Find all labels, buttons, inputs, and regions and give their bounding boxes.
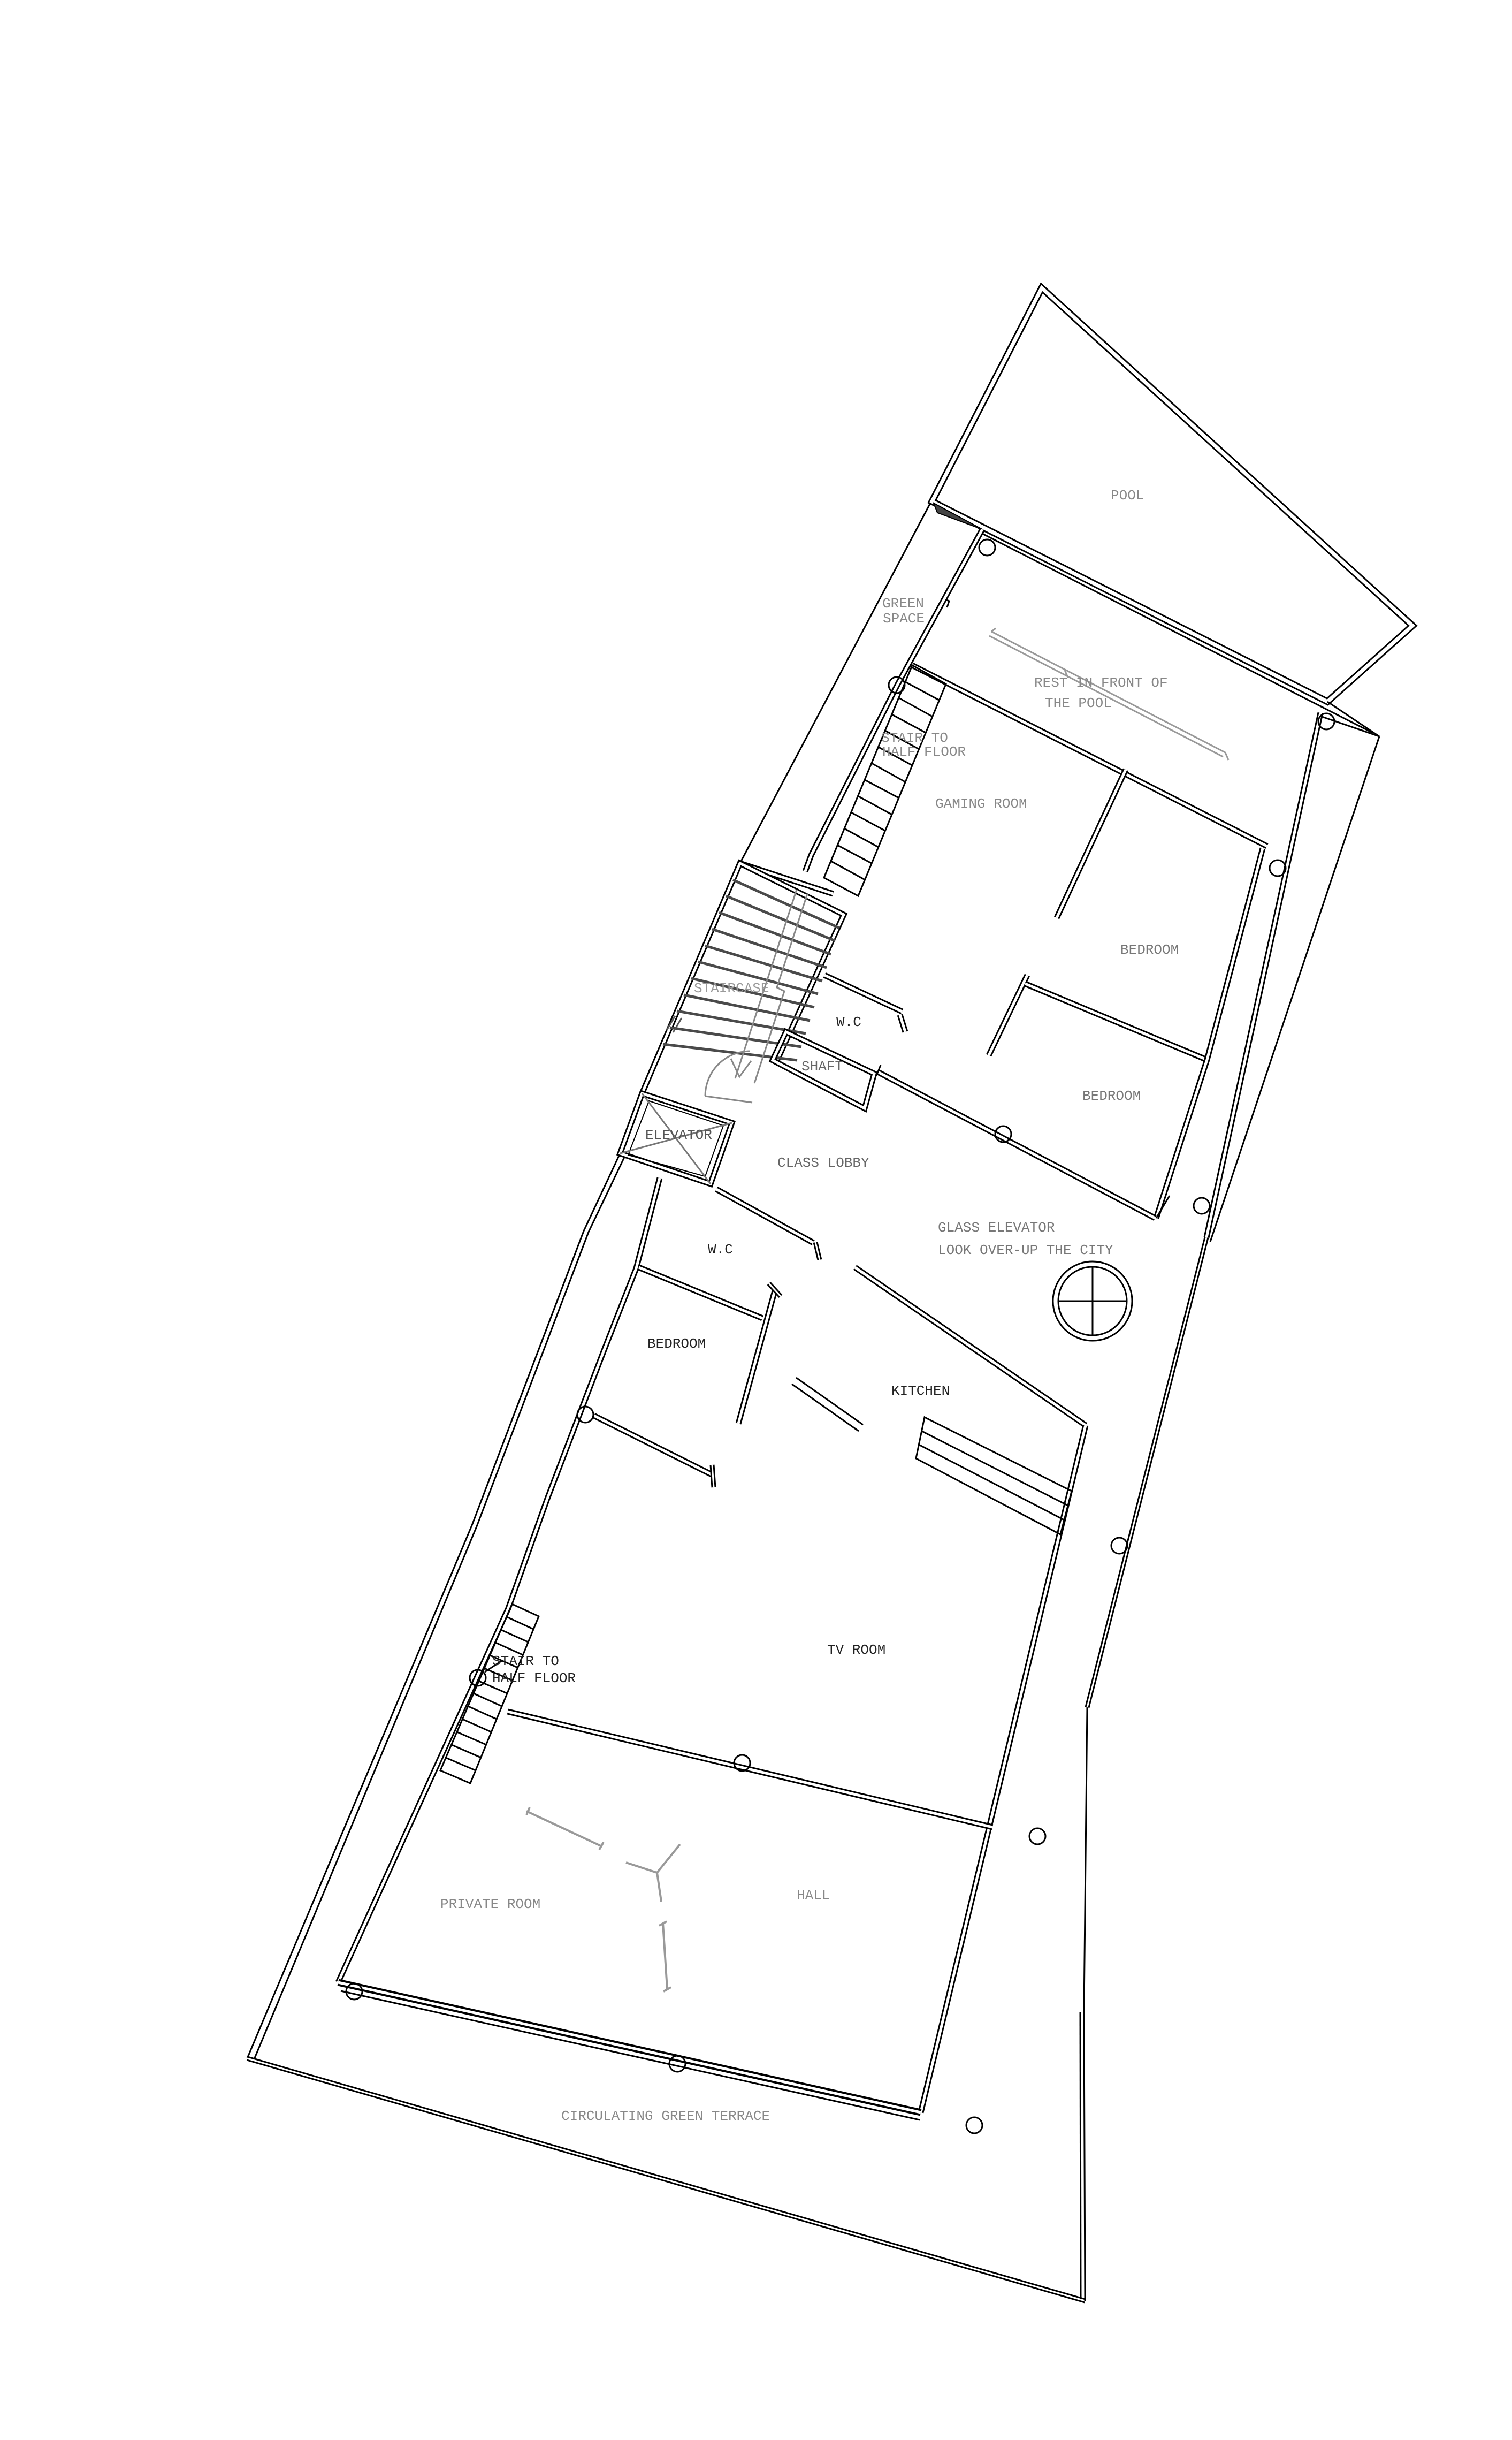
svg-text:BEDROOM: BEDROOM [647,1336,706,1352]
svg-text:PRIVATE ROOM: PRIVATE ROOM [440,1896,540,1912]
svg-text:GLASS ELEVATOR: GLASS ELEVATOR [938,1220,1055,1236]
svg-text:SHAFT: SHAFT [801,1059,843,1075]
svg-text:CLASS LOBBY: CLASS LOBBY [777,1155,869,1171]
svg-text:W.C: W.C [708,1242,733,1258]
svg-text:ELEVATOR: ELEVATOR [645,1127,712,1143]
svg-text:GREEN: GREEN [882,596,924,612]
svg-text:BEDROOM: BEDROOM [1082,1088,1141,1104]
svg-text:BEDROOM: BEDROOM [1120,942,1179,958]
svg-text:SPACE: SPACE [883,611,925,627]
svg-text:STAIRCASE: STAIRCASE [694,980,769,997]
svg-text:STAIR TO: STAIR TO [492,1653,559,1669]
svg-text:HALF FLOOR: HALF FLOOR [492,1670,576,1686]
svg-text:HALL: HALL [797,1888,830,1904]
svg-text:HALF FLOOR: HALF FLOOR [882,744,966,760]
svg-text:GAMING ROOM: GAMING ROOM [935,796,1027,812]
svg-text:THE POOL: THE POOL [1045,695,1112,711]
svg-text:KITCHEN: KITCHEN [891,1383,950,1399]
svg-text:POOL: POOL [1111,488,1144,504]
svg-text:CIRCULATING GREEN TERRACE: CIRCULATING GREEN TERRACE [561,2108,770,2124]
svg-text:LOOK OVER-UP THE CITY: LOOK OVER-UP THE CITY [938,1242,1113,1258]
svg-text:REST IN FRONT OF: REST IN FRONT OF [1034,675,1168,691]
svg-text:W.C: W.C [836,1014,861,1030]
svg-text:TV ROOM: TV ROOM [827,1642,885,1658]
